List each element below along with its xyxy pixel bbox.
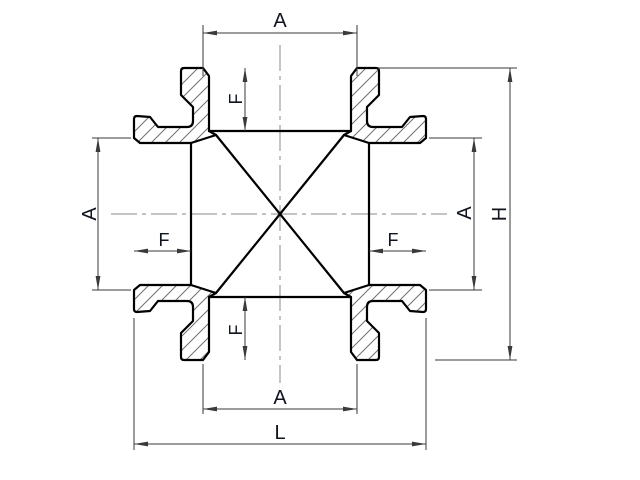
dim-label-left-depth: F [159, 230, 170, 250]
dim-label-left-height: A [79, 207, 101, 221]
sectioned-wall-bottom-left [134, 285, 216, 360]
dim-label-top-depth: F [226, 94, 246, 105]
dim-label-right-depth: F [388, 230, 399, 250]
drawing-canvas: A A L A A H F F F F [0, 0, 640, 480]
sectioned-wall-bottom-right [344, 285, 426, 360]
dim-label-top-width: A [273, 10, 287, 32]
cross-fitting-technical-drawing: A A L A A H F F F F [0, 0, 640, 480]
dim-label-right-height: A [454, 206, 476, 220]
dim-label-overall-height: H [489, 207, 511, 221]
dim-label-bottom-width: A [273, 387, 287, 409]
dim-label-overall-length: L [274, 422, 285, 444]
sectioned-wall-top-right [344, 68, 426, 143]
dim-label-bottom-depth: F [226, 325, 246, 336]
sectioned-wall-top-left [134, 68, 216, 143]
